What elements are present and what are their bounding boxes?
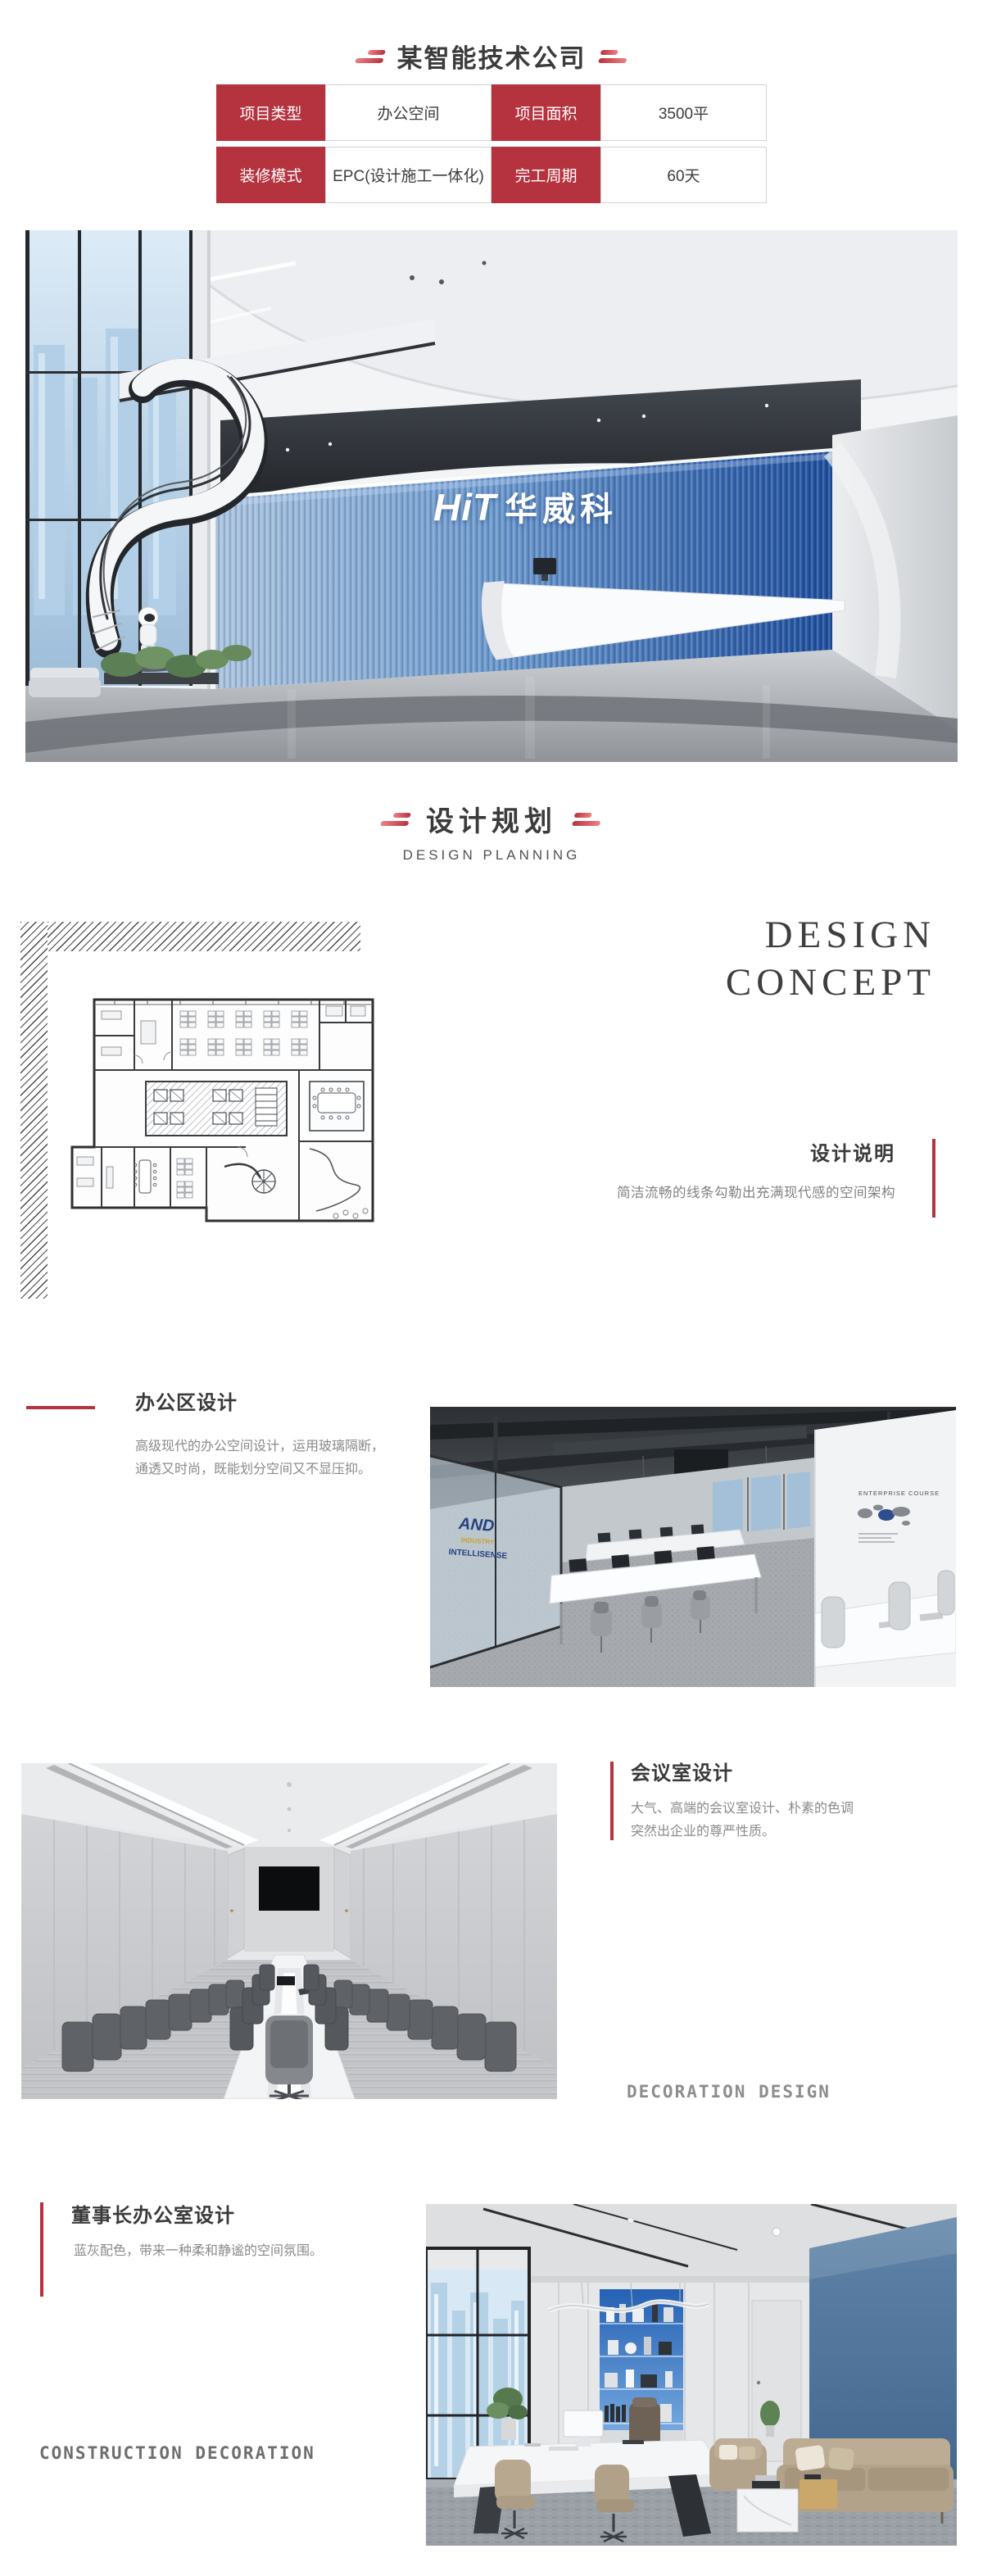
office-photo: AND INDUSTRY INTELLISENSE ENTERPRISE COU… bbox=[430, 1407, 956, 1687]
title-dash-left-icon bbox=[355, 50, 386, 63]
info-label-project-type: 项目类型 bbox=[216, 84, 325, 141]
info-value-decoration-mode: EPC(设计施工一体化) bbox=[325, 147, 491, 203]
info-value-completion-period: 60天 bbox=[600, 147, 767, 203]
planning-title-cn: 设计规划 bbox=[426, 799, 557, 839]
hatch-strip-top bbox=[48, 922, 360, 951]
floor-plan bbox=[49, 973, 393, 1244]
title-dash-right-icon bbox=[598, 50, 629, 63]
concept-subtitle: 设计说明 bbox=[810, 1137, 895, 1166]
concept-heading-line2: CONCEPT bbox=[726, 959, 935, 1006]
page: 某智能技术公司 项目类型 办公空间 项目面积 3500平 装修模式 EPC(设计… bbox=[0, 0, 983, 2576]
info-value-project-type: 办公空间 bbox=[325, 84, 491, 141]
construction-decoration-watermark: CONSTRUCTION DECORATION bbox=[39, 2443, 315, 2463]
office-red-line bbox=[26, 1406, 95, 1409]
meeting-red-bar bbox=[610, 1762, 614, 1840]
info-label-project-area: 项目面积 bbox=[491, 84, 600, 141]
chairman-red-bar bbox=[40, 2202, 43, 2297]
meeting-section-description: 大气、高端的会议室设计、朴素的色调 突然出企业的尊严性质。 bbox=[631, 1798, 909, 1844]
chairman-exec-chair bbox=[629, 2397, 660, 2447]
chairman-section-title: 董事长办公室设计 bbox=[71, 2199, 235, 2228]
section-header-design-planning: 设计规划 DESIGN PLANNING bbox=[0, 799, 983, 864]
planning-dash-left-icon bbox=[380, 813, 411, 826]
hero-logo-cn: 华威科 bbox=[505, 483, 618, 530]
office-section-title: 办公区设计 bbox=[135, 1386, 238, 1415]
floorplan-spiral-stair bbox=[252, 1170, 275, 1193]
concept-red-bar bbox=[932, 1139, 935, 1218]
planning-title-en: DESIGN PLANNING bbox=[0, 847, 983, 864]
meeting-tv-screen bbox=[259, 1866, 319, 1911]
svg-text:AND: AND bbox=[457, 1515, 495, 1535]
office-section-description: 高级现代的办公空间设计，运用玻璃隔断， 通透又时尚，既能划分空间又不显压抑。 bbox=[135, 1435, 397, 1481]
svg-text:ENTERPRISE COURSE: ENTERPRISE COURSE bbox=[858, 1490, 940, 1497]
meeting-photo bbox=[21, 1763, 557, 2099]
chairman-section-description: 蓝灰配色，带来一种柔和静谧的空间氛围。 bbox=[74, 2240, 377, 2263]
chairman-photo bbox=[426, 2204, 957, 2546]
page-title: 某智能技术公司 bbox=[397, 38, 587, 75]
hero-desk-monitor bbox=[533, 558, 556, 574]
hero-sofa bbox=[29, 668, 101, 697]
info-value-project-area: 3500平 bbox=[600, 84, 767, 141]
hero-photo: HiT 华威科 bbox=[25, 230, 958, 762]
hero-logo-en: HiT bbox=[433, 485, 496, 529]
planning-dash-right-icon bbox=[572, 813, 603, 826]
chairman-door bbox=[752, 2301, 801, 2461]
project-info-table: 项目类型 办公空间 项目面积 3500平 装修模式 EPC(设计施工一体化) 完… bbox=[216, 84, 767, 203]
info-label-decoration-mode: 装修模式 bbox=[216, 147, 325, 203]
concept-heading-line1: DESIGN bbox=[726, 911, 935, 959]
page-header: 某智能技术公司 bbox=[0, 38, 983, 75]
hatch-strip-left bbox=[20, 922, 48, 1299]
meeting-section-title: 会议室设计 bbox=[631, 1757, 733, 1785]
info-label-completion-period: 完工周期 bbox=[491, 147, 600, 203]
decoration-design-watermark: DECORATION DESIGN bbox=[627, 2082, 831, 2102]
hero-wall-logo: HiT 华威科 bbox=[433, 483, 618, 530]
concept-heading: DESIGN CONCEPT bbox=[726, 911, 935, 1006]
concept-description: 简洁流畅的线条勾勒出充满现代感的空间架构 bbox=[617, 1181, 895, 1201]
